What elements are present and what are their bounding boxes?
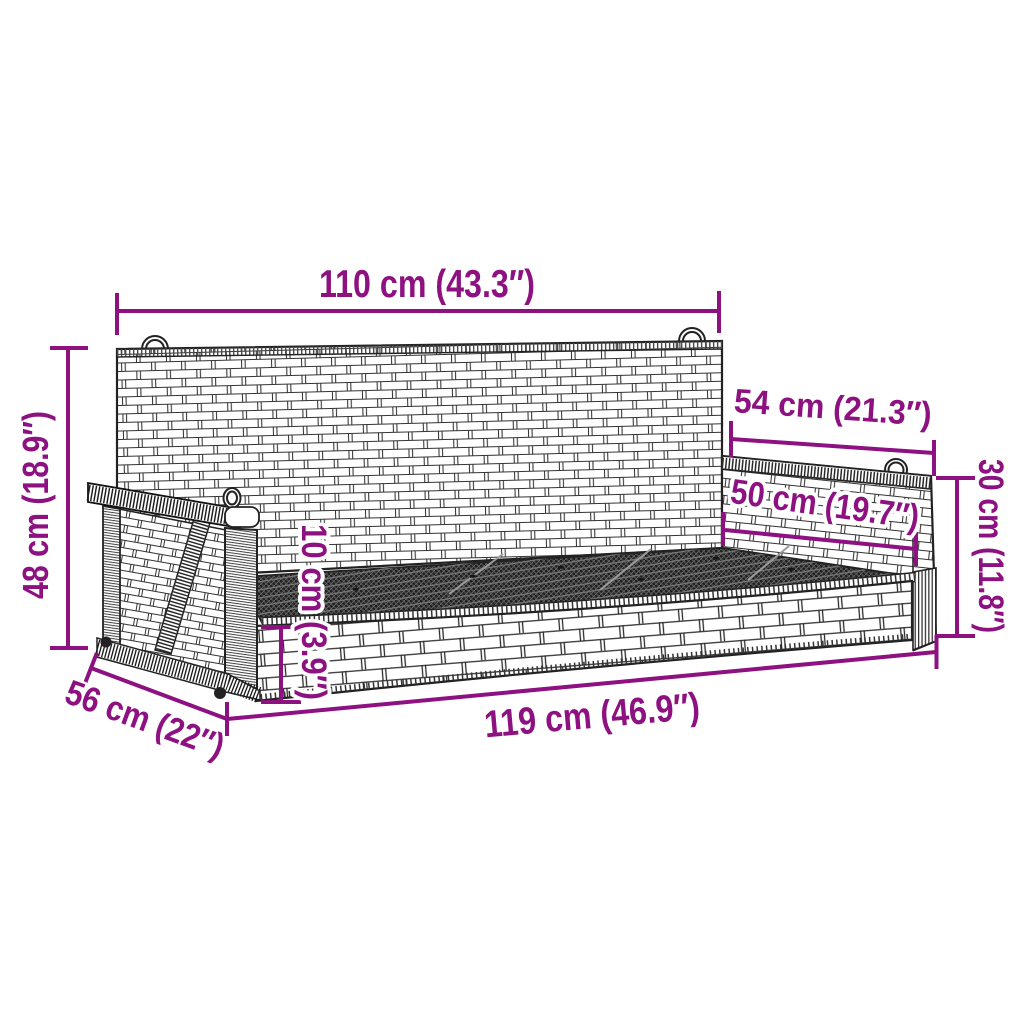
svg-text:54 cm (21.3″): 54 cm (21.3″) (733, 382, 933, 434)
svg-text:30 cm (11.8″): 30 cm (11.8″) (971, 459, 1010, 633)
svg-text:10 cm (3.9″): 10 cm (3.9″) (294, 524, 333, 700)
svg-text:48 cm (18.9″): 48 cm (18.9″) (15, 411, 56, 599)
svg-text:110 cm (43.3″): 110 cm (43.3″) (319, 263, 535, 306)
svg-text:119 cm (46.9″): 119 cm (46.9″) (483, 686, 702, 747)
